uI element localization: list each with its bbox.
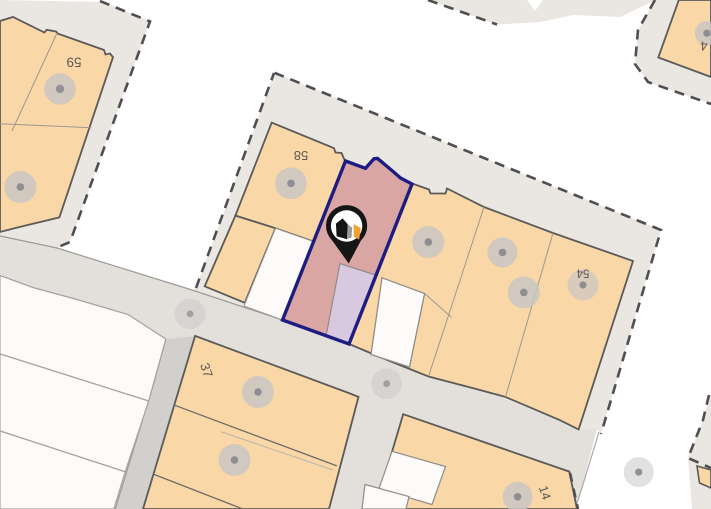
svg-text:59: 59 [66, 54, 81, 69]
svg-text:4: 4 [700, 39, 707, 54]
svg-text:58: 58 [294, 148, 308, 163]
svg-text:54: 54 [576, 266, 589, 278]
